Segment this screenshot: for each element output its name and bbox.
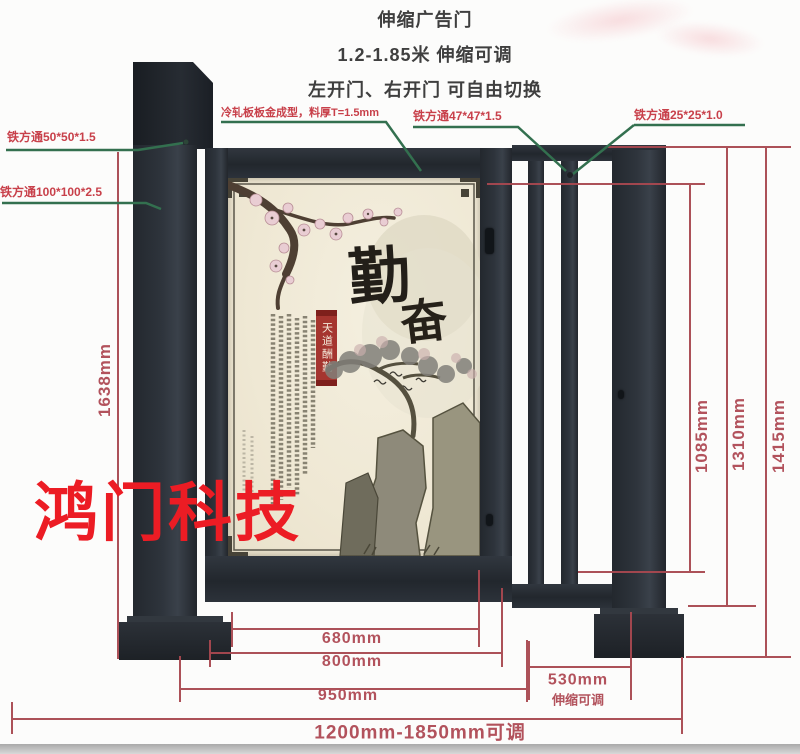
label-square-tube-50: 铁方通50*50*1.5 bbox=[7, 128, 96, 145]
telescopic-bottom-rail bbox=[512, 584, 614, 608]
title-opening-direction: 左开门、右开门 可自由切换 bbox=[150, 76, 700, 102]
label-square-tube-25: 铁方通25*25*1.0 bbox=[634, 106, 723, 123]
dim-frame-height: 1638mm bbox=[95, 343, 115, 417]
pillar-knob bbox=[618, 390, 624, 399]
calligraphy-sub: 奋 bbox=[397, 292, 450, 350]
dim-poster-width: 680mm bbox=[322, 630, 382, 648]
label-square-tube-100: 铁方通100*100*2.5 bbox=[0, 183, 102, 200]
brand-watermark: 鸿门科技 bbox=[34, 462, 302, 554]
door-lower-knob bbox=[486, 514, 493, 526]
door-bottom-rail bbox=[205, 556, 512, 602]
dim-telescopic-note: 伸缩可调 bbox=[548, 690, 608, 709]
dim-total-height: 1415mm bbox=[769, 399, 789, 473]
door-top-rail bbox=[205, 148, 512, 178]
right-pillar bbox=[612, 150, 666, 616]
title-size-range: 1.2-1.85米 伸缩可调 bbox=[150, 41, 700, 67]
label-square-tube-47: 铁方通47*47*1.5 bbox=[413, 107, 502, 124]
telescopic-bar-1 bbox=[528, 161, 544, 591]
dim-fence-height: 1085mm bbox=[692, 399, 712, 473]
dim-door-outer-width: 950mm bbox=[318, 687, 378, 705]
telescopic-bar-2 bbox=[561, 161, 578, 591]
dim-gate-height: 1310mm bbox=[729, 397, 749, 471]
left-pillar-base bbox=[119, 622, 231, 660]
dim-telescopic-width: 530mm 伸缩可调 bbox=[548, 672, 608, 709]
right-pillar-base bbox=[594, 614, 684, 658]
motor-housing bbox=[133, 62, 213, 149]
title-product-name: 伸缩广告门 bbox=[150, 6, 700, 32]
dim-telescopic-value: 530mm bbox=[548, 672, 608, 689]
gate-product-diagram: 伸缩广告门 1.2-1.85米 伸缩可调 左开门、右开门 可自由切换 bbox=[0, 0, 800, 754]
ground-strip bbox=[0, 744, 800, 754]
dim-total-width: 1200mm-1850mm可调 bbox=[314, 718, 525, 745]
door-right-stile bbox=[480, 148, 512, 602]
door-lock-handle bbox=[485, 228, 494, 254]
header: 伸缩广告门 1.2-1.85米 伸缩可调 左开门、右开门 可自由切换 bbox=[150, 6, 700, 111]
label-cold-rolled-sheet: 冷轧板板金成型，料厚T=1.5mm bbox=[221, 104, 379, 120]
dim-door-width: 800mm bbox=[322, 653, 382, 671]
